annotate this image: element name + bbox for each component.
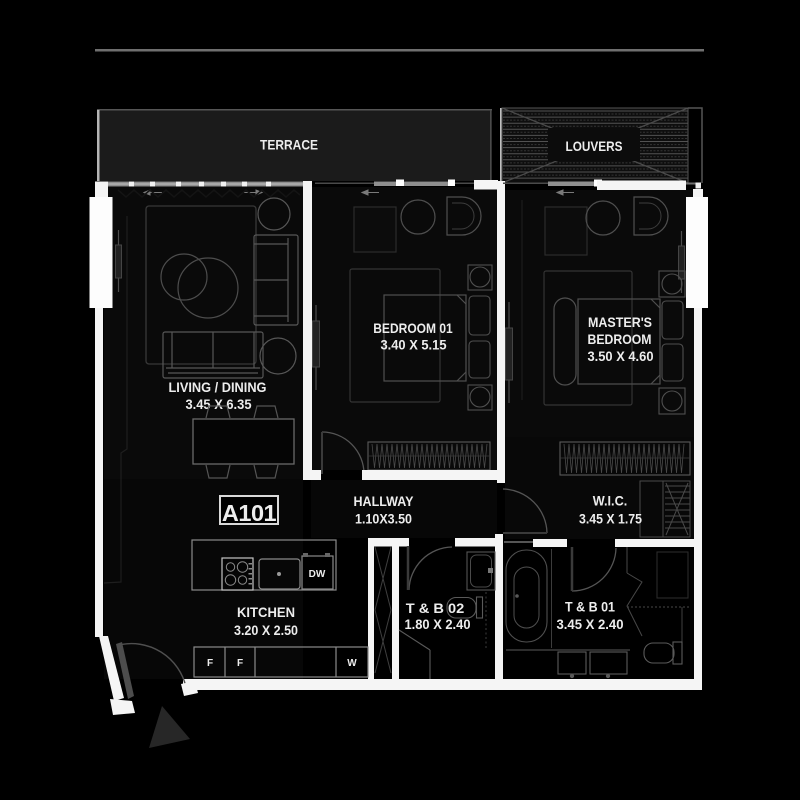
svg-text:W: W	[347, 658, 357, 669]
svg-text:F: F	[207, 658, 213, 669]
svg-text:BEDROOM 01: BEDROOM 01	[373, 320, 453, 336]
svg-text:1.10X3.50: 1.10X3.50	[355, 511, 412, 527]
svg-text:A101: A101	[222, 500, 277, 526]
svg-text:HALLWAY: HALLWAY	[354, 493, 415, 509]
svg-text:MASTER'S: MASTER'S	[588, 314, 652, 330]
svg-text:TERRACE: TERRACE	[260, 137, 318, 153]
svg-text:KITCHEN: KITCHEN	[237, 604, 295, 620]
svg-text:3.20 X 2.50: 3.20 X 2.50	[234, 622, 298, 638]
svg-text:W.I.C.: W.I.C.	[593, 493, 628, 509]
svg-text:3.45 X 2.40: 3.45 X 2.40	[557, 616, 624, 632]
svg-text:3.50 X 4.60: 3.50 X 4.60	[588, 348, 654, 364]
svg-text:3.45 X 6.35: 3.45 X 6.35	[186, 396, 252, 412]
svg-text:LOUVERS: LOUVERS	[566, 138, 623, 154]
svg-text:BEDROOM: BEDROOM	[588, 331, 652, 347]
svg-text:F: F	[237, 658, 243, 669]
svg-text:3.45 X 1.75: 3.45 X 1.75	[579, 511, 642, 527]
svg-text:LIVING / DINING: LIVING / DINING	[169, 379, 267, 395]
svg-text:T & B 01: T & B 01	[565, 599, 615, 615]
svg-text:1.80 X 2.40: 1.80 X 2.40	[405, 616, 471, 632]
svg-text:DW: DW	[309, 569, 326, 580]
svg-text:3.40 X 5.15: 3.40 X 5.15	[381, 337, 447, 353]
svg-text:T & B 02: T & B 02	[406, 600, 465, 616]
